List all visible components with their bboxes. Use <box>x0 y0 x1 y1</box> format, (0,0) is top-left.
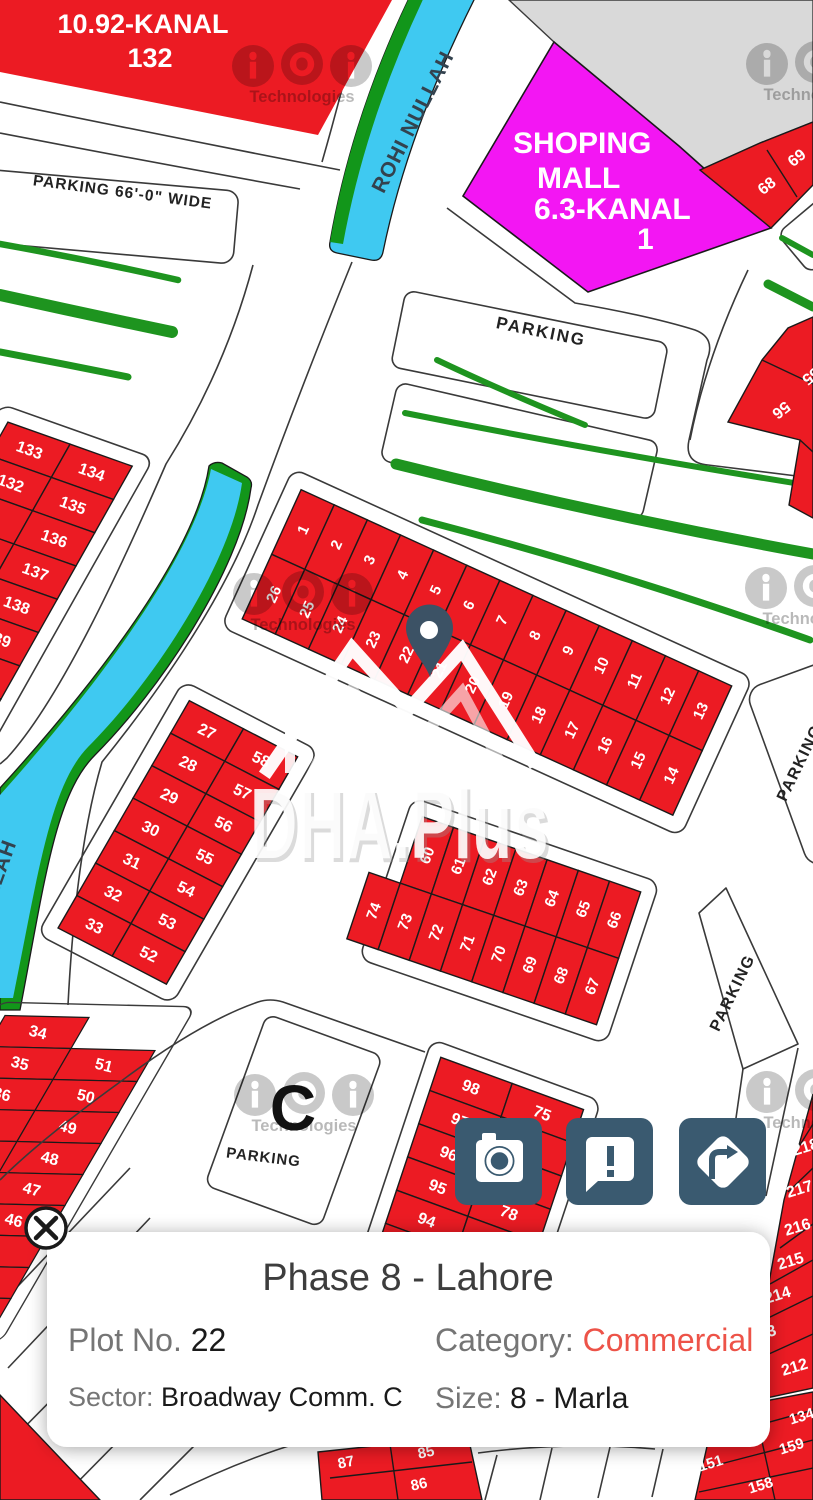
svg-text:10.92-KANAL: 10.92-KANAL <box>57 9 228 39</box>
svg-text:86: 86 <box>409 1475 429 1495</box>
svg-text:Sector: Broadway Comm. C: Sector: Broadway Comm. C <box>68 1382 403 1412</box>
svg-text:87: 87 <box>336 1453 356 1473</box>
svg-text:Phase 8 - Lahore: Phase 8 - Lahore <box>262 1257 554 1299</box>
svg-text:Technologies: Technologies <box>762 610 813 628</box>
svg-text:SHOPING: SHOPING <box>513 127 651 160</box>
svg-text:Category: Commercial: Category: Commercial <box>435 1322 753 1358</box>
svg-text:C: C <box>270 1072 316 1144</box>
svg-text:Plot No. 22: Plot No. 22 <box>68 1322 226 1358</box>
svg-text:Technologies: Technologies <box>763 86 813 104</box>
svg-text:Technologies: Technologies <box>249 88 354 106</box>
svg-text:MALL: MALL <box>537 162 620 195</box>
svg-text:DHA.Plus: DHA.Plus <box>250 767 548 879</box>
svg-text:Technologies: Technologies <box>763 1114 813 1132</box>
svg-text:Technologies: Technologies <box>250 616 355 634</box>
svg-text:6.3-KANAL: 6.3-KANAL <box>534 193 691 226</box>
svg-text:Size: 8 - Marla: Size: 8 - Marla <box>435 1382 629 1415</box>
svg-text:1: 1 <box>637 223 654 256</box>
svg-text:132: 132 <box>127 43 172 73</box>
